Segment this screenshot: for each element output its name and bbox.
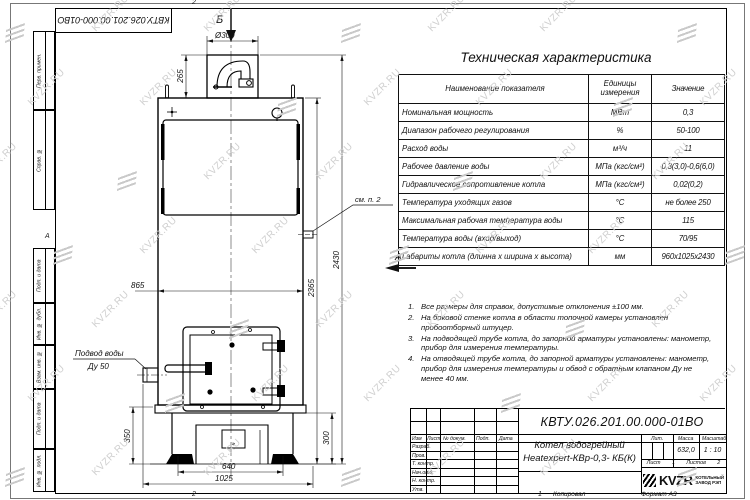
dim-diameter-300: Ø300 [207,31,258,55]
svg-text:Подвод воды: Подвод воды [75,349,124,358]
spec-header-row: Наименование показателя Единицы измерени… [399,75,725,104]
kvzr-logo-caption: КОТЕЛЬНЫЙ ЗАВОД РЭП [695,475,724,486]
sheets-label: Листов [686,460,706,466]
dim-opening-640: 640 [178,456,283,476]
svg-text:см. п. 2: см. п. 2 [355,195,381,204]
svg-text:865: 865 [131,281,145,290]
table-row: Габариты котла (длинна х ширина х высота… [399,248,725,266]
dim-base-300: 300 [293,413,336,464]
company-logo: KVZR КОТЕЛЬНЫЙ ЗАВОД РЭП [641,467,726,493]
table-row: Рабочее давление водыМПа (кгс/см²)0,3(3,… [399,158,725,176]
water-inlet-callout: Подвод воды Ду 50 [73,349,167,382]
zone-marker-bottom-right: 1 [538,491,542,498]
margin-field-vzam-inv: Взам. инв. № [33,345,55,389]
mass-value: 632,0 [673,447,699,454]
sheet-content: КВТУ.026.201.00.000-01ВО Перв. примен. С… [0,0,750,500]
lit-label: Лит. [651,436,663,442]
svg-text:А: А [394,252,402,263]
dim-base-350: 350 [123,407,153,464]
svg-text:1025: 1025 [215,474,233,483]
svg-text:2365: 2365 [307,279,316,298]
spec-table: Наименование показателя Единицы измерени… [398,74,725,266]
margin-field-perv-primen: Перв. примен. [33,31,55,110]
view-a-arrow: А [385,252,416,272]
svg-text:Ø300: Ø300 [214,31,235,40]
doc-number: КВТУ.026.201.00.000-01ВО [518,409,726,434]
list-item: 3.На подводящей трубе котла, до запорной… [404,334,716,354]
dim-base-1025: 1025 [143,384,313,488]
footer-copy-label: Копировал [553,491,585,498]
zone-marker-bottom-left: 2 [192,491,196,498]
upper-panel [161,120,300,215]
svg-text:2430: 2430 [332,251,341,270]
margin-field-podp-data-2: Подп. и дата [33,389,55,449]
zone-marker-left: А [45,233,50,240]
table-row: Номинальная мощностьМВт0,3 [399,104,725,122]
dim-body-865: 865 [131,281,303,293]
svg-text:Ду 50: Ду 50 [87,362,109,371]
sheet-numbers: Лист 1 Листов 2 [641,459,726,467]
product-name: Котел водогрейный Heatexpert-КВр-0,3- КБ… [518,434,641,471]
sheet-value: 1 [672,460,675,466]
svg-text:265: 265 [176,69,185,84]
svg-text:350: 350 [123,429,132,443]
zone-marker-top: 2 [192,0,196,6]
top-fittings [167,107,282,121]
kvzr-logo-icon [643,474,656,487]
list-item: 2.На боковой стенке котла в области топо… [404,313,716,333]
list-item: 4.На отводящей трубе котла, до запорной … [404,354,716,384]
product-name-line2: Heatexpert-КВр-0,3- КБ(К) [523,453,636,466]
rev-header-podp: Подп. [476,436,490,442]
dim-body-2365: 2365 [305,98,321,464]
spec-header-name: Наименование показателя [399,75,589,104]
svg-text:300: 300 [322,431,331,445]
boiler-front-view: Б Ø300 [55,8,417,492]
margin-field-inv-dubl: Инв. № дубл. [33,303,55,345]
sampling-fitting-callout: см. п. 2 [298,195,393,238]
kvzr-logo-text: KVZR [659,473,692,488]
spec-header-value: Значение [652,75,725,104]
chimney [207,55,258,98]
table-row: Гидравлическое сопротивление котлаМПа (к… [399,176,725,194]
sheet-label: Лист [647,460,661,466]
boiler-body [155,85,306,413]
spec-table-title: Техническая характеристика [398,50,714,65]
margin-field-sprav-no: Справ. № [33,110,55,210]
table-row: Расход водым³/ч11 [399,140,725,158]
table-row: Максимальная рабочая температура воды°С1… [399,212,725,230]
sheets-value: 2 [717,460,720,466]
product-name-line1: Котел водогрейный [534,440,624,453]
drawing-sheet: КВТУ.026.201.00.000-01ВО Перв. примен. С… [0,0,750,500]
rev-header-list: Лист [427,436,440,442]
rev-header-dokum: № докум. [443,436,466,442]
table-row: Температура воды (вход/выход)°С70/95 [399,230,725,248]
svg-text:Б: Б [216,14,223,26]
margin-field-inv-podl: Инв. № подл. [33,449,55,492]
title-block: Изм Лист № докум. Подп. Дата Разраб. Про… [410,408,725,492]
furnace-door [165,327,285,411]
list-item: 1.Все размеры для справок, допустимые от… [404,302,716,312]
table-row: Температура уходящих газов°Сне более 250 [399,194,725,212]
base-ash-pit [150,413,313,464]
svg-text:640: 640 [222,462,236,471]
mass-label: Масса [678,436,693,442]
scale-value: 1 : 10 [699,447,726,454]
notes-list: 1.Все размеры для справок, допустимые от… [404,302,716,385]
spec-header-unit: Единицы измерения [589,75,652,104]
table-row: Диапазон рабочего регулирования%50-100 [399,122,725,140]
margin-field-podp-data-1: Подп. и дата [33,248,55,303]
rev-header-data: Дата [499,436,513,442]
scale-label: Масштаб [702,436,726,442]
